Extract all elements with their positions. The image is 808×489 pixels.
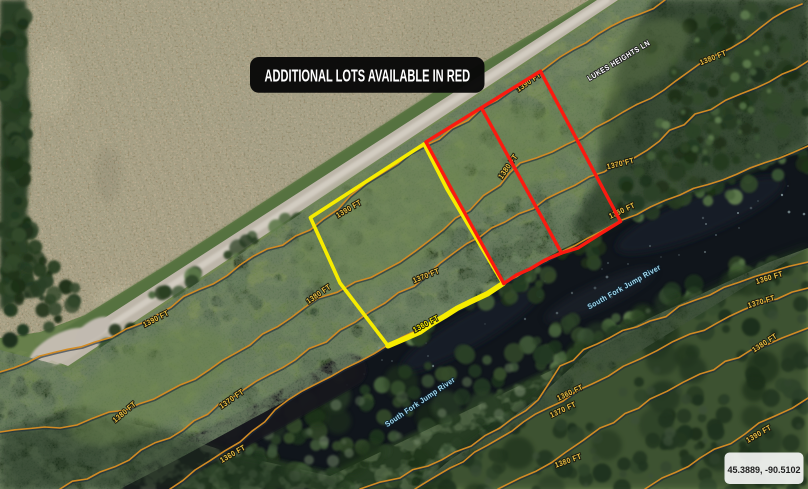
svg-text:45.3889, -90.5102: 45.3889, -90.5102: [727, 465, 800, 475]
svg-text:ADDITIONAL LOTS AVAILABLE IN R: ADDITIONAL LOTS AVAILABLE IN RED: [265, 66, 471, 86]
